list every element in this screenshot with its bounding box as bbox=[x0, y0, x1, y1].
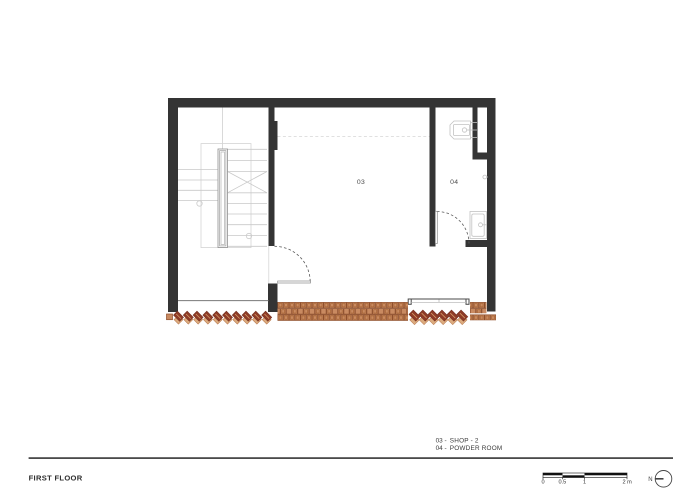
svg-text:0: 0 bbox=[542, 480, 545, 486]
svg-text:SHOP - 2: SHOP - 2 bbox=[450, 437, 479, 444]
svg-text:03 -: 03 - bbox=[436, 437, 447, 444]
svg-text:03: 03 bbox=[357, 179, 365, 186]
svg-text:04: 04 bbox=[450, 179, 458, 186]
svg-text:0.5: 0.5 bbox=[559, 480, 567, 486]
svg-text:POWDER ROOM: POWDER ROOM bbox=[450, 445, 503, 452]
svg-text:N: N bbox=[648, 477, 652, 483]
svg-text:FIRST FLOOR: FIRST FLOOR bbox=[29, 473, 83, 482]
svg-text:04 -: 04 - bbox=[436, 445, 447, 452]
svg-text:1: 1 bbox=[583, 480, 586, 486]
svg-text:2 m: 2 m bbox=[623, 480, 633, 486]
